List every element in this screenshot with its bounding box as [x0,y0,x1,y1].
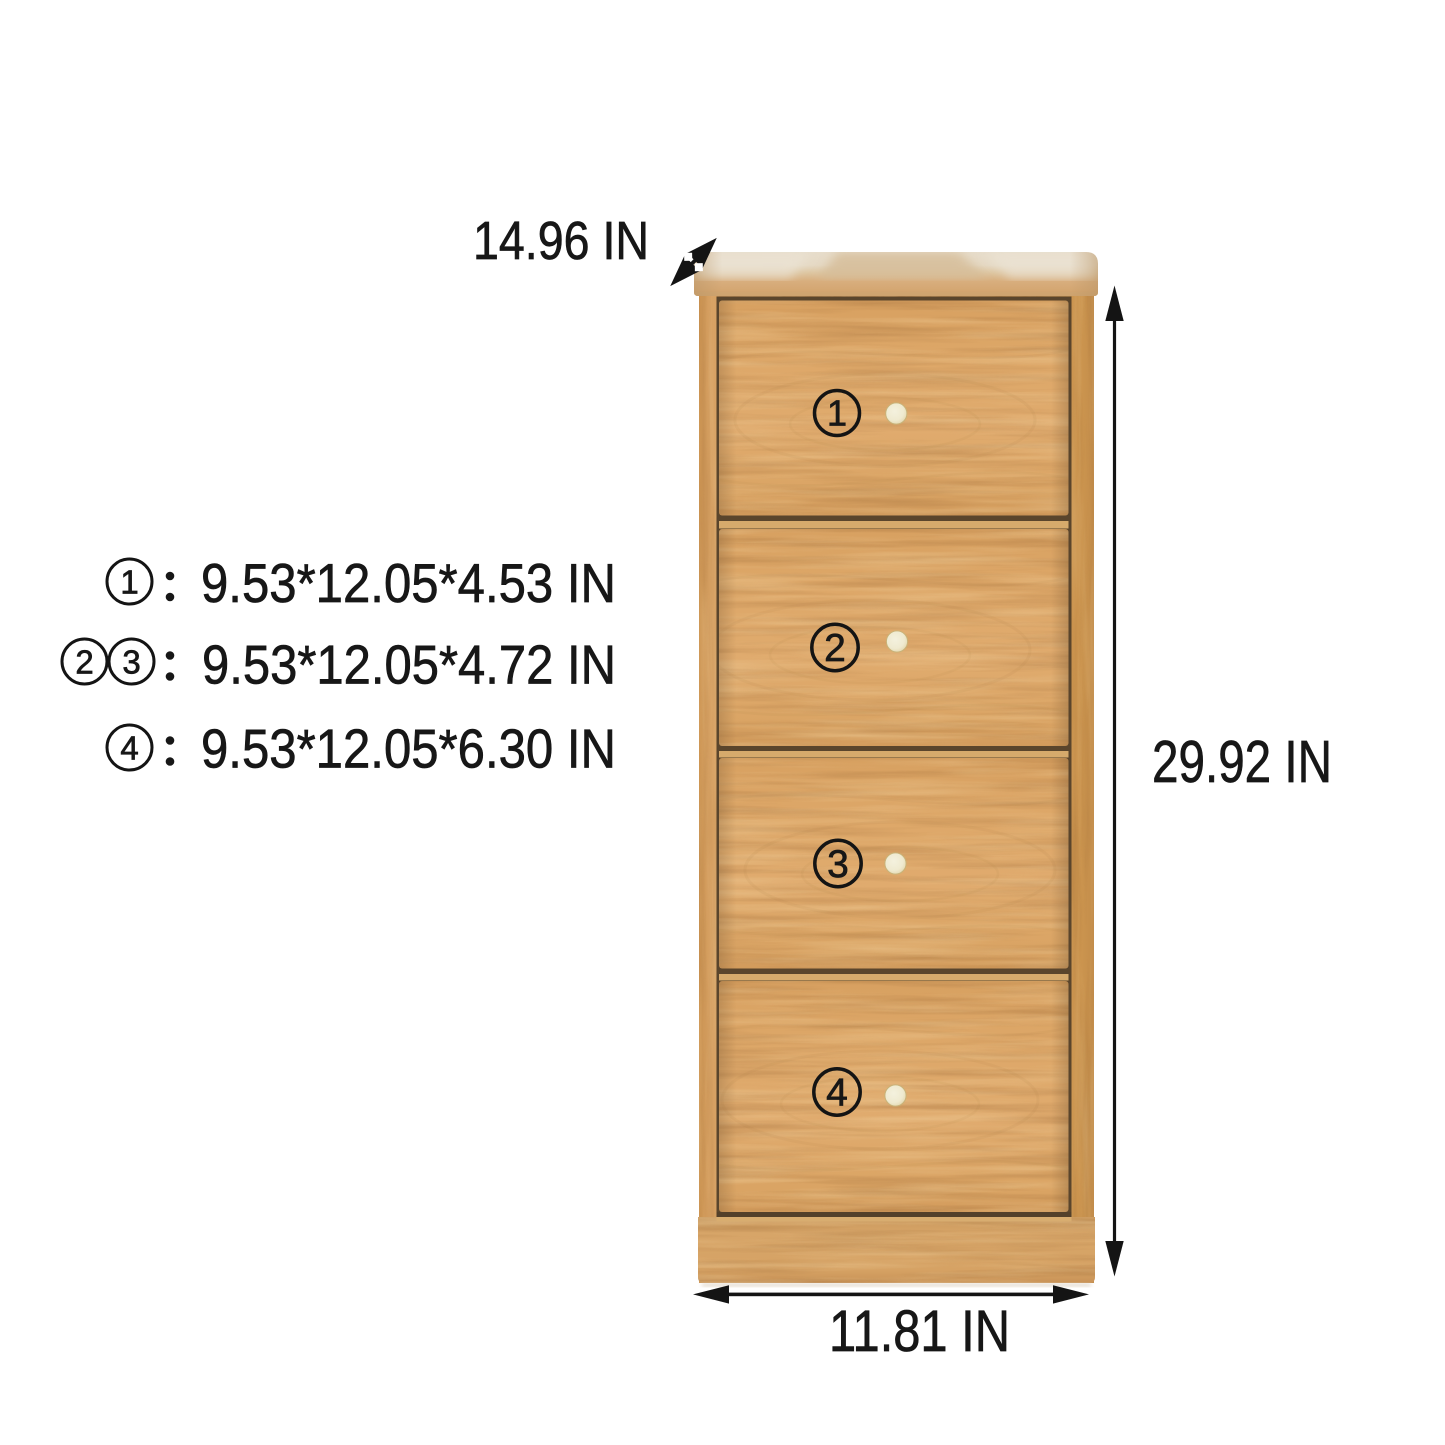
svg-text:1: 1 [120,564,138,601]
svg-text:9.53*12.05*4.53 IN: 9.53*12.05*4.53 IN [201,552,616,614]
svg-text:3: 3 [827,843,849,886]
svg-text:1: 1 [827,393,847,434]
svg-text:9.53*12.05*6.30 IN: 9.53*12.05*6.30 IN [201,718,616,780]
svg-text:4: 4 [120,730,138,767]
svg-text:9.53*12.05*4.72 IN: 9.53*12.05*4.72 IN [202,634,616,696]
svg-text:2: 2 [824,627,846,670]
svg-text:11.81 IN: 11.81 IN [829,1299,1010,1364]
svg-text:14.96 IN: 14.96 IN [473,211,649,271]
svg-text:2: 2 [75,644,93,681]
svg-text:29.92 IN: 29.92 IN [1152,729,1332,795]
svg-text:4: 4 [826,1072,848,1115]
svg-text:3: 3 [122,644,140,681]
